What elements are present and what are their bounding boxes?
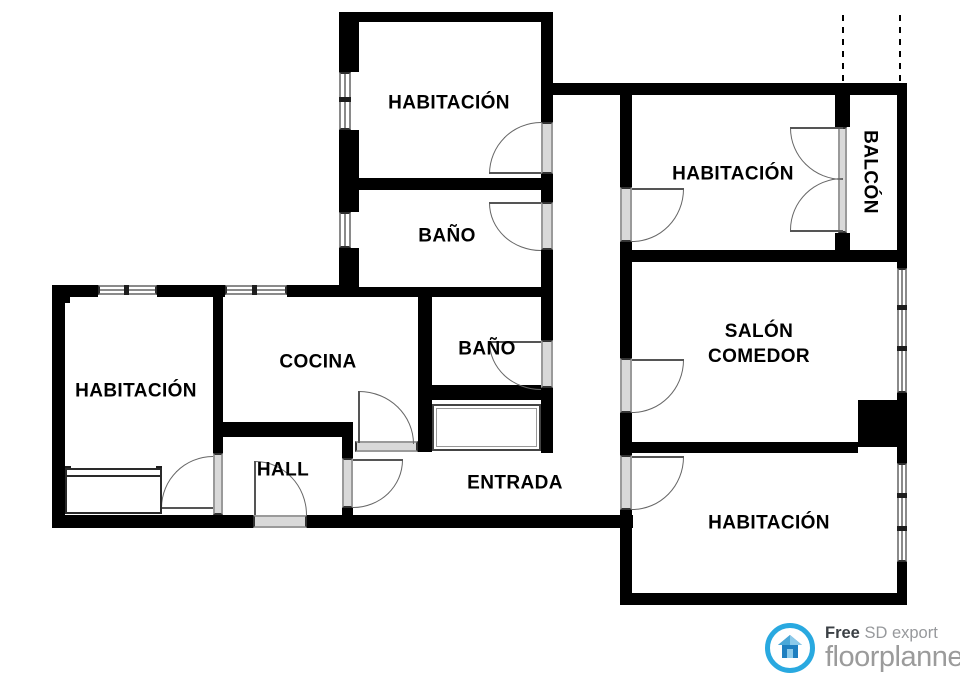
door-threshold — [541, 202, 553, 250]
window-tick — [252, 285, 257, 295]
wall-segment — [342, 508, 353, 515]
door-swing-arc — [359, 391, 414, 444]
wall-segment — [52, 515, 253, 528]
room-label: SALÓNCOMEDOR — [708, 319, 810, 369]
window-tick — [339, 97, 351, 102]
wall-segment — [52, 285, 65, 528]
logo-tagline: Free SD export — [825, 625, 960, 642]
room-label: HABITACIÓN — [708, 511, 830, 536]
wall-segment — [339, 178, 553, 190]
wall-segment — [620, 510, 632, 605]
wall-segment — [835, 95, 850, 127]
room-label: COCINA — [279, 350, 356, 375]
wall-segment — [897, 83, 907, 268]
wall-segment — [307, 515, 633, 528]
door-leaf — [161, 507, 213, 509]
wall-segment — [342, 437, 353, 458]
door-leaf — [254, 461, 256, 515]
door-leaf — [358, 391, 360, 443]
door-threshold — [541, 340, 553, 388]
window-tick — [124, 285, 129, 295]
wall-segment — [620, 95, 632, 187]
door-leaf — [632, 188, 684, 190]
floorplanner-logo-icon — [764, 622, 816, 674]
logo-brand-name: floorplanner — [825, 643, 960, 672]
door-leaf — [489, 172, 541, 174]
logo-free-label: Free — [825, 624, 860, 642]
door-swing-arc — [790, 178, 843, 230]
room-label: HABITACIÓN — [672, 162, 794, 187]
door-swing-arc — [632, 360, 684, 413]
room-label: HABITACIÓN — [75, 379, 197, 404]
window-tick — [897, 305, 907, 310]
balcony-overhang-dash — [899, 15, 901, 83]
wall-segment — [418, 290, 432, 452]
room-label: HABITACIÓN — [388, 91, 510, 116]
room-label: BALCÓN — [858, 130, 883, 214]
wall-segment — [287, 285, 341, 297]
wall-segment — [541, 393, 553, 453]
room-label: HALL — [257, 458, 309, 483]
floorplan-image: HABITACIÓNBAÑOHABITACIÓNBALCÓNSALÓNCOMED… — [0, 0, 960, 679]
door-leaf — [489, 202, 541, 204]
door-threshold — [342, 458, 353, 508]
wall-segment — [835, 233, 850, 250]
wall-segment — [620, 442, 858, 453]
door-leaf — [632, 359, 684, 361]
window-tick — [897, 493, 907, 498]
door-leaf — [790, 230, 843, 232]
window-tick — [897, 526, 907, 531]
door-threshold — [541, 122, 553, 174]
door-threshold — [620, 187, 632, 242]
logo-sd-export-label: SD export — [864, 624, 937, 642]
window — [339, 212, 351, 248]
built-in-closet — [432, 404, 541, 451]
room-label: ENTRADA — [467, 471, 563, 496]
door-threshold — [620, 358, 632, 413]
door-threshold — [213, 453, 223, 515]
door-swing-arc — [353, 460, 403, 508]
window — [897, 268, 907, 393]
wall-segment — [339, 12, 552, 22]
wall-segment — [858, 400, 907, 447]
door-leaf — [632, 456, 684, 458]
door-threshold — [253, 515, 307, 528]
floor-plan: HABITACIÓNBAÑOHABITACIÓNBALCÓNSALÓNCOMED… — [0, 0, 960, 679]
door-leaf — [790, 127, 843, 129]
wall-segment — [541, 12, 553, 122]
room-label: BAÑO — [418, 224, 476, 249]
door-swing-arc — [161, 456, 213, 508]
door-leaf — [353, 459, 403, 461]
door-swing-arc — [489, 203, 541, 251]
wall-segment — [339, 12, 359, 72]
wall-segment — [351, 287, 553, 297]
floorplanner-logo-text: Free SD export floorplanner — [825, 622, 960, 672]
wall-segment — [339, 130, 359, 178]
door-swing-arc — [489, 122, 541, 174]
floorplanner-watermark: Free SD export floorplanner — [764, 622, 960, 674]
door-threshold — [620, 455, 632, 510]
door-swing-arc — [632, 189, 684, 242]
bed — [65, 468, 162, 514]
wall-segment — [620, 250, 907, 262]
window — [897, 463, 907, 562]
wall-segment — [620, 593, 907, 605]
door-swing-arc — [790, 128, 843, 180]
window-tick — [897, 346, 907, 351]
room-label: BAÑO — [458, 337, 516, 362]
wall-segment — [339, 190, 359, 212]
door-swing-arc — [632, 457, 684, 510]
wall-segment — [213, 422, 353, 437]
balcony-overhang-dash — [842, 15, 844, 83]
wall-segment — [541, 83, 907, 95]
